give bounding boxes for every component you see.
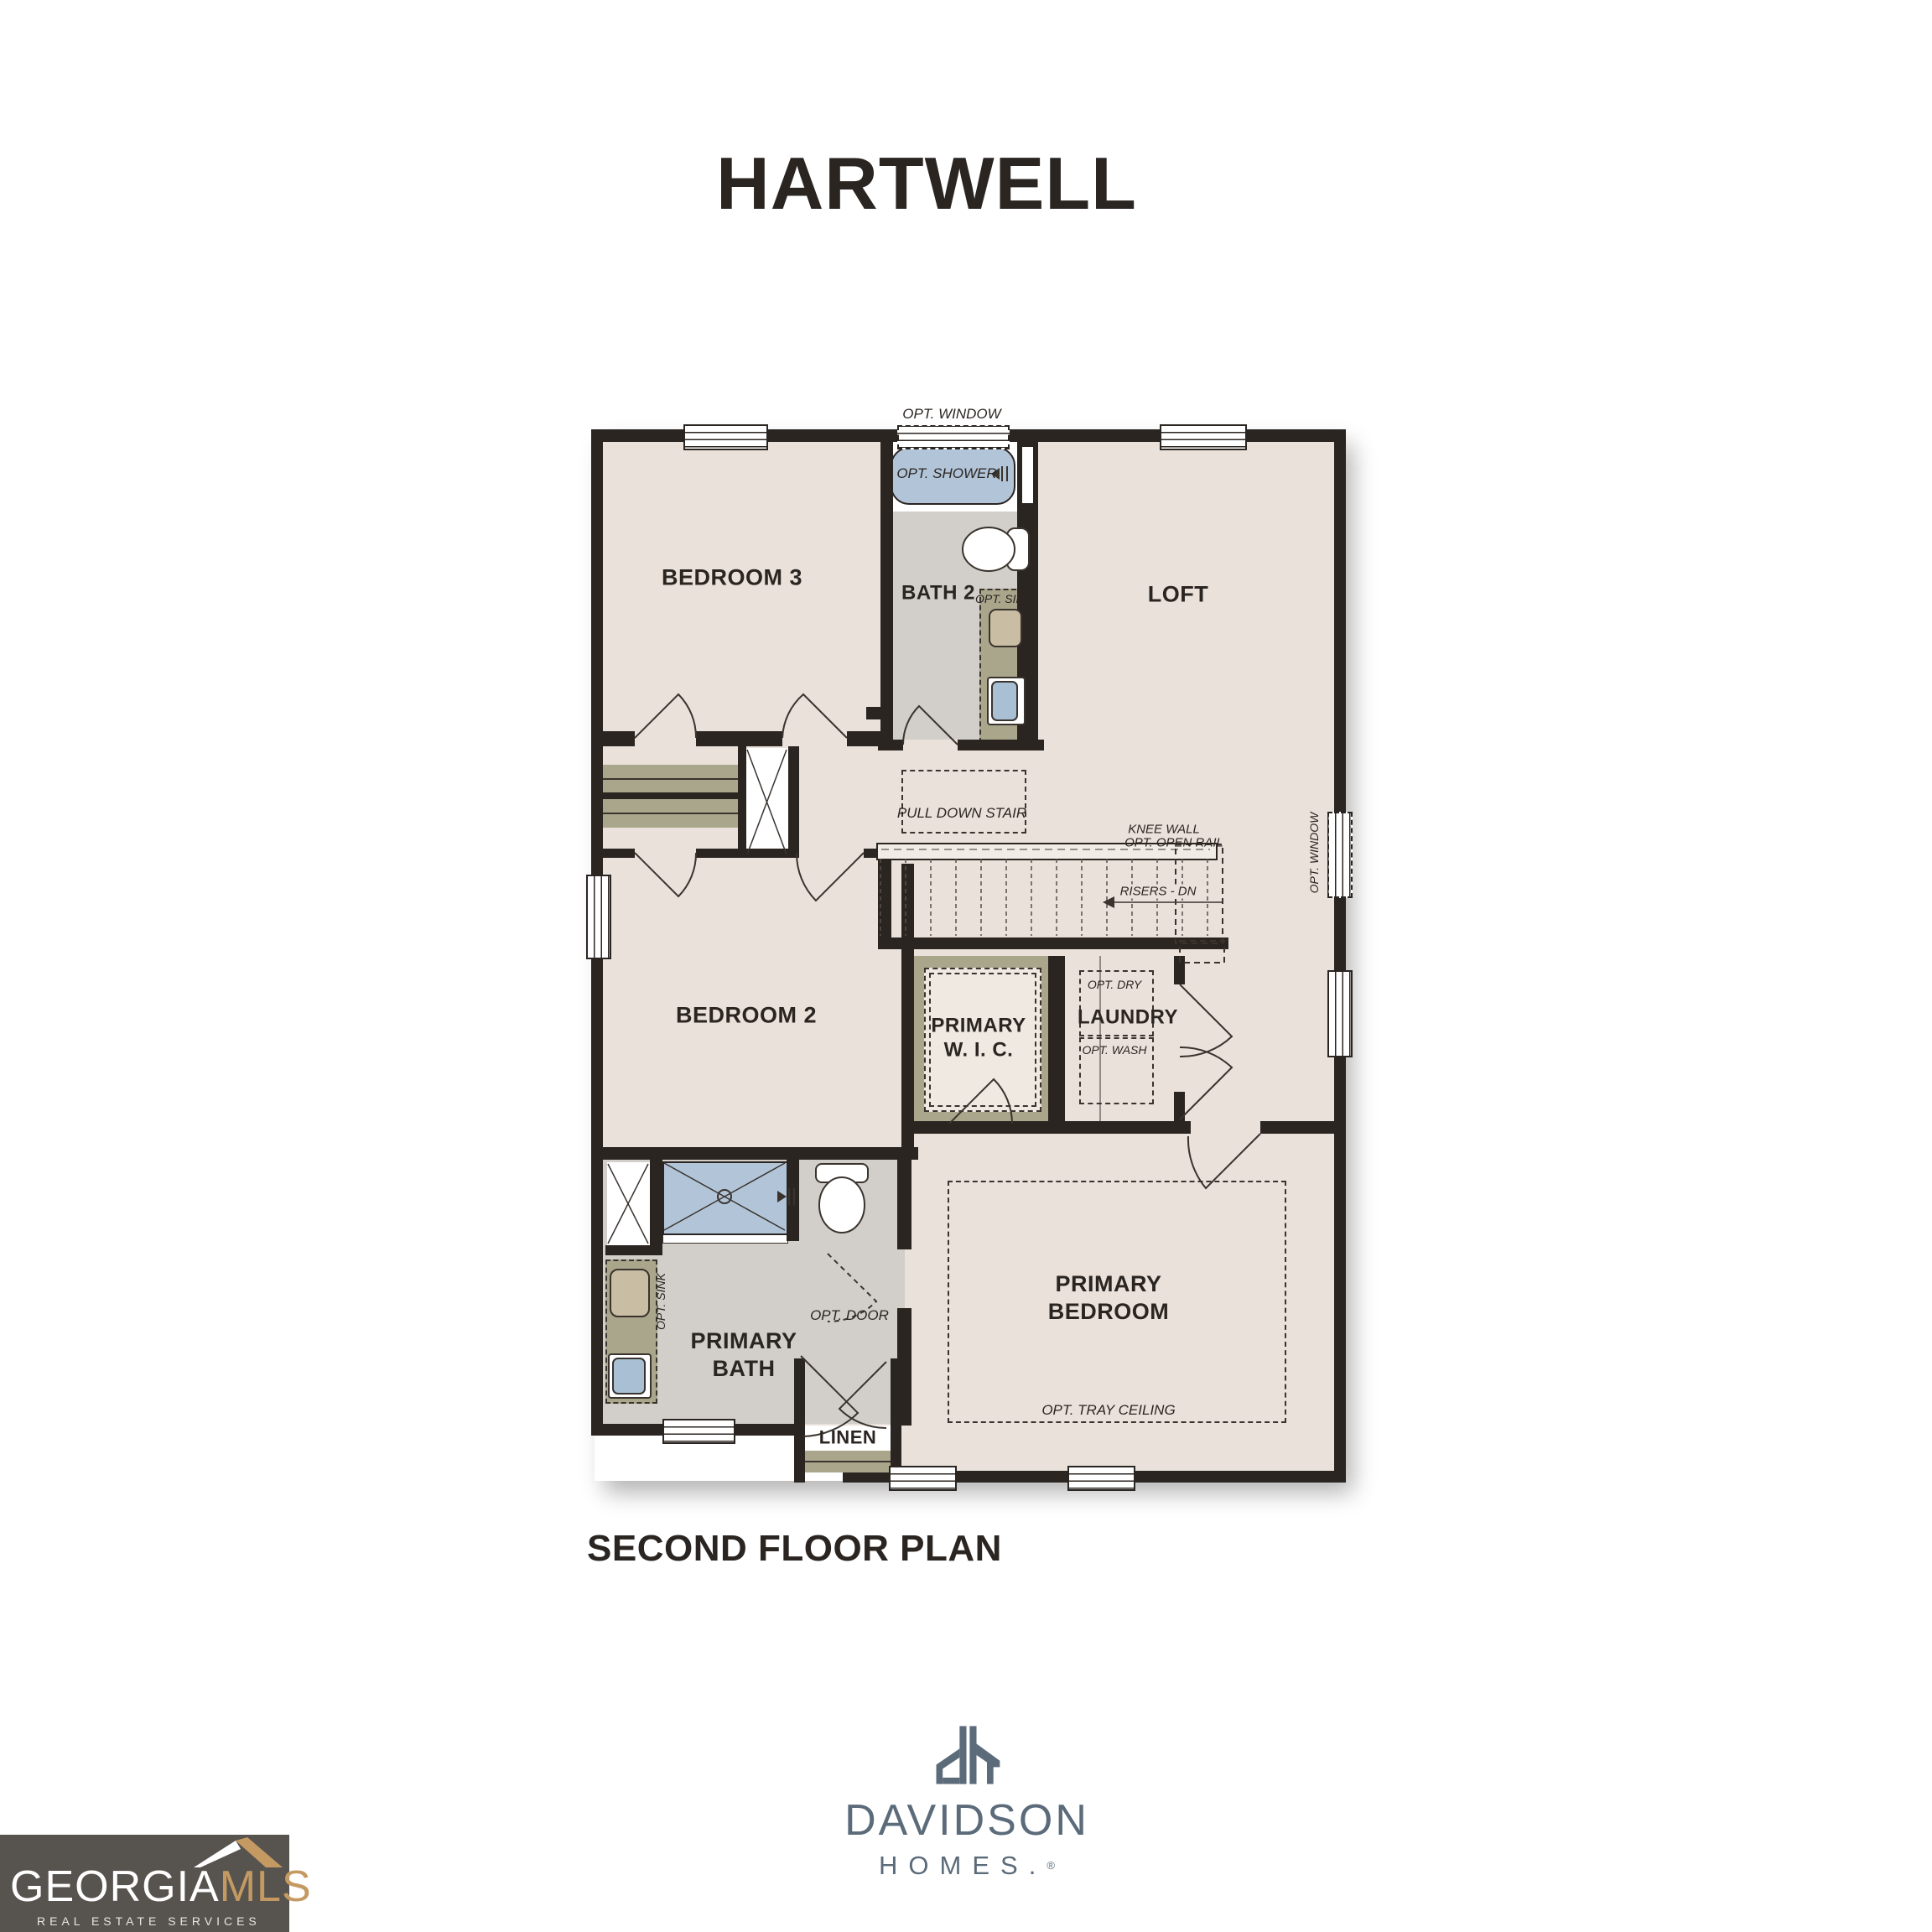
- annotation-risers-dn: RISERS - DN: [1117, 885, 1200, 899]
- window-left-hall: [586, 875, 611, 959]
- annotation-opt-tray-ceiling: OPT. TRAY CEILING: [1041, 1402, 1175, 1419]
- chase-1: [746, 748, 788, 856]
- room-label-primary-bedroom: PRIMARY BEDROOM: [1048, 1270, 1170, 1326]
- wall-closet-divider: [603, 792, 740, 799]
- annotation-opt-sink-bath2: OPT. SINK: [975, 592, 1032, 605]
- registered-mark: ®: [1046, 1859, 1055, 1872]
- wall-chase-left: [738, 746, 746, 858]
- page-title: HARTWELL: [716, 141, 1137, 226]
- window-loft: [1160, 424, 1247, 450]
- chase-2: [607, 1162, 650, 1245]
- wall-shower-divider: [787, 1160, 799, 1241]
- wall-bed2-bottom: [603, 1147, 918, 1160]
- wic-line2: W. I. C.: [944, 1039, 1014, 1062]
- annotation-opt-door: OPT. DOOR: [810, 1307, 889, 1324]
- annotation-opt-wash: OPT. WASH: [1082, 1043, 1146, 1057]
- wall-bed3-bottom-a: [603, 731, 635, 746]
- davidson-wordmark: DAVIDSON: [819, 1795, 1114, 1846]
- wall-laundry-stub-bottom: [1174, 1092, 1185, 1121]
- annotation-opt-window-right: OPT. WINDOW: [1307, 813, 1321, 894]
- pbath-line2: BATH: [713, 1356, 776, 1381]
- pull-down-stair-box: [901, 770, 1026, 834]
- room-label-linen: LINEN: [819, 1427, 877, 1450]
- window-primary-bath: [662, 1419, 735, 1444]
- room-label-primary-wic: PRIMARY W. I. C.: [931, 1014, 1026, 1063]
- wall-stair-bottom: [878, 937, 1228, 949]
- wall-right: [1334, 429, 1346, 1483]
- annotation-opt-window-top: OPT. WINDOW: [902, 406, 1000, 423]
- primary-vanity: [605, 1259, 657, 1404]
- window-opt-right: [1327, 812, 1353, 898]
- window-right: [1327, 970, 1353, 1057]
- pbath-line1: PRIMARY: [690, 1328, 797, 1353]
- annotation-pull-down-stair: PULL DOWN STAIR: [897, 805, 1026, 822]
- wall-linen-right: [891, 1358, 901, 1483]
- wall-bath-nook-a: [897, 1160, 911, 1249]
- room-label-bedroom3: BEDROOM 3: [662, 564, 802, 592]
- closet-shelf-2: [603, 799, 740, 828]
- linen-shelf: [805, 1451, 891, 1472]
- window-bedroom3: [683, 424, 768, 450]
- window-primary-bed-1: [889, 1466, 957, 1491]
- wall-laundry-stub-top: [1174, 956, 1185, 984]
- dh-monogram-icon: [927, 1726, 1007, 1784]
- room-label-loft: LOFT: [1148, 581, 1208, 609]
- floor-plan-caption: SECOND FLOOR PLAN: [587, 1528, 1002, 1570]
- annotation-opt-open-rail: OPT. OPEN RAIL: [1124, 836, 1223, 850]
- window-primary-bed-2: [1067, 1466, 1135, 1491]
- mls-text: MLS: [220, 1862, 312, 1911]
- davidson-homes-text: HOMES.®: [819, 1851, 1114, 1881]
- wall-stair-left: [878, 849, 891, 949]
- wall-wic-laundry: [1048, 956, 1065, 1121]
- primary-shower: [662, 1161, 790, 1235]
- annotation-opt-dry: OPT. DRY: [1088, 978, 1141, 991]
- wall-bed3-bottom-b: [696, 731, 782, 746]
- georgia-mls-logo: GEORGIAMLS REAL ESTATE SERVICES: [0, 1835, 289, 1932]
- window-opt-bath2: [897, 425, 1010, 449]
- mls-tagline: REAL ESTATE SERVICES: [37, 1914, 261, 1928]
- wall-chase-right: [788, 746, 799, 858]
- closet-shelf-1: [603, 765, 740, 792]
- floor-plan: BEDROOM 3 BATH 2 LOFT BEDROOM 2 PRIMARY …: [591, 429, 1346, 1488]
- annotation-opt-sink-primary: OPT. SINK: [654, 1273, 667, 1330]
- wall-chase2-bottom: [605, 1245, 662, 1255]
- wall-center-bottom: [914, 1121, 1191, 1134]
- wall-bath2-jamb: [866, 707, 880, 719]
- annotation-opt-shower: OPT. SHOWER: [896, 465, 996, 482]
- plumbing-niche: [1022, 447, 1033, 503]
- mls-wordmark: GEORGIAMLS: [10, 1862, 312, 1912]
- annotation-knee-wall: KNEE WALL: [1128, 823, 1200, 837]
- davidson-homes-logo: DAVIDSON HOMES.®: [819, 1726, 1114, 1881]
- georgia-text: GEORGIA: [10, 1862, 220, 1911]
- pbed-line2: BEDROOM: [1048, 1299, 1170, 1324]
- pbed-line1: PRIMARY: [1055, 1271, 1161, 1296]
- room-label-bedroom2: BEDROOM 2: [676, 1002, 817, 1030]
- homes-text: HOMES.: [879, 1851, 1046, 1880]
- wall-chase2-right: [650, 1160, 662, 1246]
- wall-hall-bottom-b: [696, 849, 797, 858]
- wall-hall-bottom-a: [603, 849, 635, 858]
- wall-bed3-bath2: [880, 442, 893, 746]
- wall-bath2-bottom-a: [878, 740, 903, 750]
- wic-line1: PRIMARY: [931, 1015, 1026, 1037]
- wall-center-bottom-b: [1260, 1121, 1334, 1134]
- wall-bed2-right: [901, 864, 914, 1160]
- room-label-laundry: LAUNDRY: [1078, 1005, 1178, 1029]
- room-label-bath2: BATH 2: [901, 580, 975, 605]
- room-label-primary-bath: PRIMARY BATH: [690, 1327, 797, 1383]
- wall-bath2-bottom-b: [958, 740, 1044, 750]
